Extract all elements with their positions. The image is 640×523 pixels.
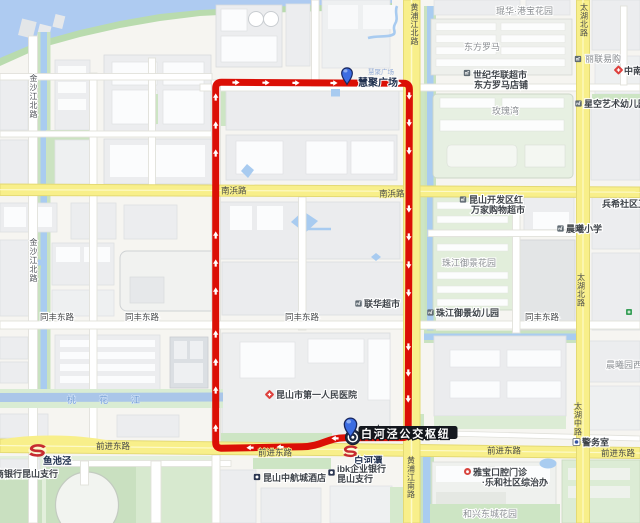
svg-text:联华超市: 联华超市 — [364, 298, 400, 309]
svg-text:和兴东城花园: 和兴东城花园 — [463, 508, 517, 519]
svg-text:警务室: 警务室 — [582, 437, 609, 448]
svg-text:昆山支行: 昆山支行 — [337, 473, 373, 484]
svg-text:雅宝口腔门诊: 雅宝口腔门诊 — [472, 467, 528, 478]
svg-text:玫瑰湾: 玫瑰湾 — [492, 105, 519, 116]
svg-text:同丰东路: 同丰东路 — [525, 312, 560, 322]
svg-text:太湖北路: 太湖北路 — [577, 272, 585, 308]
svg-text:·乐和社区综治办: ·乐和社区综治办 — [482, 477, 548, 488]
svg-text:南浜路: 南浜路 — [221, 186, 247, 196]
svg-text:丽联易购: 丽联易购 — [585, 53, 621, 64]
svg-text:前进东路: 前进东路 — [258, 448, 293, 458]
svg-text:昆山开发区红: 昆山开发区红 — [469, 194, 523, 205]
svg-text:星空艺术幼儿园: 星空艺术幼儿园 — [584, 98, 640, 109]
svg-text:鱼池泾: 鱼池泾 — [43, 455, 72, 467]
svg-text:南浜路: 南浜路 — [379, 189, 405, 199]
svg-text:珠江御景花园: 珠江御景花园 — [442, 257, 496, 268]
svg-text:晨曦园西: 晨曦园西 — [606, 359, 640, 370]
svg-text:金沙江北路: 金沙江北路 — [30, 237, 38, 283]
svg-text:东方罗马店铺: 东方罗马店铺 — [474, 79, 528, 90]
svg-text:黄浦江南路: 黄浦江南路 — [407, 455, 415, 499]
svg-text:晨曦小学: 晨曦小学 — [566, 223, 602, 234]
svg-text:东方罗马: 东方罗马 — [464, 41, 500, 52]
svg-text:同丰东路: 同丰东路 — [285, 312, 320, 322]
svg-text:世纪华联超市: 世纪华联超市 — [473, 69, 527, 80]
svg-text:招商银行昆山支行: 招商银行昆山支行 — [0, 468, 58, 479]
svg-text:琨华·港宝花园: 琨华·港宝花园 — [496, 5, 553, 16]
svg-text:同丰东路: 同丰东路 — [125, 312, 160, 322]
svg-text:同丰东路: 同丰东路 — [40, 312, 75, 322]
svg-text:太湖北路: 太湖北路 — [580, 2, 588, 38]
svg-text:昆山中航城酒店: 昆山中航城酒店 — [263, 472, 326, 483]
svg-text:中南花: 中南花 — [624, 65, 640, 76]
svg-text:桃花江: 桃花江 — [67, 394, 163, 405]
svg-text:白河泾公交枢纽: 白河泾公交枢纽 — [361, 427, 451, 441]
svg-text:昆山市第一人民医院: 昆山市第一人民医院 — [276, 389, 357, 400]
svg-text:黄浦江北路: 黄浦江北路 — [411, 2, 419, 46]
svg-text:前进东路: 前进东路 — [487, 446, 522, 456]
svg-text:前进东路: 前进东路 — [601, 448, 636, 458]
svg-text:慧聚广场: 慧聚广场 — [358, 76, 398, 89]
svg-text:金沙江北路: 金沙江北路 — [30, 73, 38, 119]
svg-text:兵希社区卫: 兵希社区卫 — [602, 198, 640, 209]
svg-text:慧聚广场: 慧聚广场 — [368, 67, 395, 76]
svg-text:ibk企业银行: ibk企业银行 — [337, 463, 386, 474]
svg-text:万家购物超市: 万家购物超市 — [470, 204, 525, 215]
svg-text:珠江御景幼儿园: 珠江御景幼儿园 — [436, 307, 499, 318]
svg-text:前进东路: 前进东路 — [96, 441, 131, 451]
svg-text:太湖中路: 太湖中路 — [574, 401, 582, 437]
